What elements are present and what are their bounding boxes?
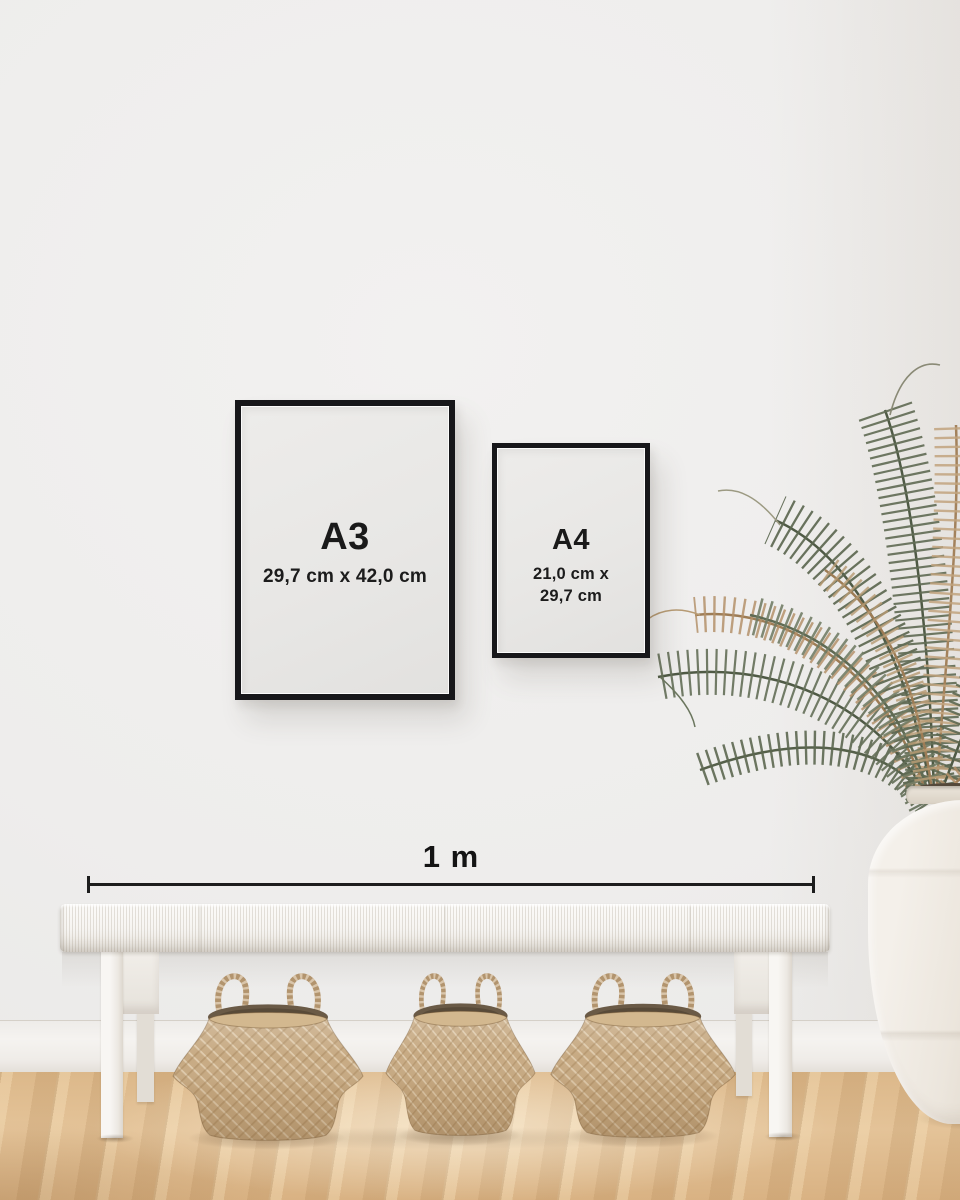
scale-bar-label: 1 m [87, 839, 815, 875]
scale-bar-line [87, 883, 815, 886]
a4-frame: A4 21,0 cm x 29,7 cm [492, 443, 650, 658]
a3-frame-text: A3 29,7 cm x 42,0 cm [263, 516, 427, 588]
a3-frame-paper: A3 29,7 cm x 42,0 cm [241, 406, 449, 694]
seagrass-basket-left [168, 968, 368, 1143]
seagrass-basket-right [546, 968, 740, 1140]
bench-leg-back-left [137, 1012, 154, 1102]
a4-dimensions-line2: 29,7 cm [533, 586, 609, 608]
palm-plant [640, 315, 960, 815]
a3-dimensions: 29,7 cm x 42,0 cm [263, 566, 427, 588]
bench-seat [60, 904, 830, 952]
a4-dimensions: 21,0 cm x 29,7 cm [533, 564, 609, 608]
a4-frame-paper: A4 21,0 cm x 29,7 cm [497, 448, 645, 653]
a3-frame: A3 29,7 cm x 42,0 cm [235, 400, 455, 700]
a4-frame-text: A4 21,0 cm x 29,7 cm [533, 524, 609, 608]
a4-size-label: A4 [533, 524, 609, 557]
seagrass-basket-middle [382, 968, 539, 1138]
a4-dimensions-line1: 21,0 cm x [533, 564, 609, 586]
bench-leg-front-left [101, 950, 123, 1138]
a3-size-label: A3 [263, 516, 427, 559]
bench-leg-front-right [769, 950, 792, 1137]
scale-bar: 1 m [87, 839, 815, 886]
